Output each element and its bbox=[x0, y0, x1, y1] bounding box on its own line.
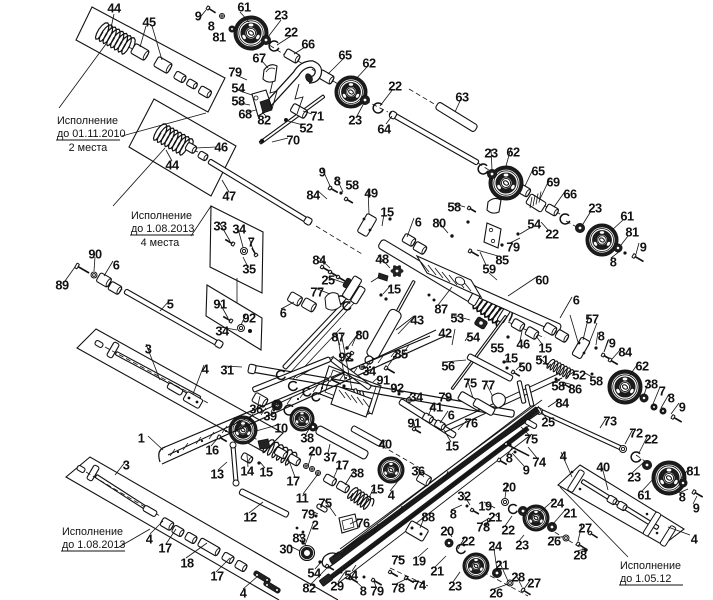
svg-text:81: 81 bbox=[625, 225, 639, 240]
svg-text:36: 36 bbox=[249, 402, 263, 417]
svg-text:9: 9 bbox=[640, 240, 647, 255]
svg-text:15: 15 bbox=[259, 465, 273, 480]
svg-text:23: 23 bbox=[448, 579, 462, 594]
svg-text:9: 9 bbox=[319, 165, 326, 180]
svg-text:69: 69 bbox=[546, 175, 560, 190]
svg-text:26: 26 bbox=[547, 534, 561, 549]
svg-text:90: 90 bbox=[88, 247, 102, 262]
svg-text:62: 62 bbox=[635, 359, 649, 374]
svg-text:51: 51 bbox=[535, 353, 549, 368]
svg-text:9: 9 bbox=[609, 336, 616, 351]
svg-text:17: 17 bbox=[286, 474, 300, 489]
svg-text:13: 13 bbox=[210, 467, 224, 482]
svg-text:21: 21 bbox=[488, 510, 502, 525]
svg-text:75: 75 bbox=[463, 376, 477, 391]
svg-text:54: 54 bbox=[527, 217, 542, 232]
svg-text:65: 65 bbox=[531, 164, 545, 179]
svg-text:36: 36 bbox=[411, 464, 425, 479]
svg-text:58: 58 bbox=[551, 379, 565, 394]
svg-text:38: 38 bbox=[350, 466, 364, 481]
svg-text:89: 89 bbox=[55, 278, 69, 293]
svg-text:8: 8 bbox=[679, 490, 686, 505]
svg-text:57: 57 bbox=[585, 312, 599, 327]
svg-text:74: 74 bbox=[412, 578, 427, 593]
svg-text:40: 40 bbox=[596, 460, 610, 475]
svg-text:53: 53 bbox=[450, 311, 464, 326]
svg-text:27: 27 bbox=[527, 576, 541, 591]
svg-text:8: 8 bbox=[334, 174, 341, 189]
svg-text:34: 34 bbox=[215, 324, 230, 339]
svg-text:77: 77 bbox=[481, 378, 495, 393]
svg-text:66: 66 bbox=[563, 187, 577, 202]
svg-text:до 1.05.12: до 1.05.12 bbox=[620, 573, 671, 585]
svg-text:80: 80 bbox=[432, 216, 446, 231]
svg-text:46: 46 bbox=[516, 337, 530, 352]
svg-text:8: 8 bbox=[610, 255, 617, 270]
svg-text:65: 65 bbox=[338, 48, 352, 63]
svg-text:42: 42 bbox=[438, 326, 452, 341]
svg-text:28: 28 bbox=[511, 570, 525, 585]
svg-text:9: 9 bbox=[679, 400, 686, 415]
svg-text:83: 83 bbox=[292, 531, 306, 546]
svg-text:58: 58 bbox=[447, 200, 461, 215]
svg-text:50: 50 bbox=[518, 360, 532, 375]
svg-text:55: 55 bbox=[490, 341, 504, 356]
svg-text:76: 76 bbox=[356, 516, 370, 531]
svg-text:68: 68 bbox=[238, 107, 252, 122]
svg-text:21: 21 bbox=[563, 506, 577, 521]
svg-text:6: 6 bbox=[280, 306, 287, 321]
svg-text:Исполнение: Исполнение bbox=[131, 210, 192, 222]
svg-text:до 1.08.2013: до 1.08.2013 bbox=[131, 223, 194, 235]
svg-text:38: 38 bbox=[644, 377, 658, 392]
svg-text:82: 82 bbox=[302, 581, 316, 596]
svg-text:3: 3 bbox=[145, 342, 152, 357]
svg-text:3: 3 bbox=[123, 458, 130, 473]
svg-text:72: 72 bbox=[629, 426, 643, 441]
svg-text:16: 16 bbox=[205, 443, 219, 458]
svg-text:78: 78 bbox=[476, 520, 490, 535]
svg-text:35: 35 bbox=[242, 262, 256, 277]
svg-text:Исполнение: Исполнение bbox=[62, 526, 123, 538]
svg-text:1: 1 bbox=[138, 431, 145, 446]
svg-text:22: 22 bbox=[501, 523, 515, 538]
svg-text:22: 22 bbox=[545, 227, 559, 242]
svg-text:14: 14 bbox=[240, 464, 255, 479]
svg-text:15: 15 bbox=[504, 351, 518, 366]
svg-text:56: 56 bbox=[441, 359, 455, 374]
svg-text:81: 81 bbox=[686, 464, 700, 479]
svg-text:24: 24 bbox=[488, 539, 503, 554]
svg-text:8: 8 bbox=[360, 584, 367, 599]
svg-text:8: 8 bbox=[668, 391, 675, 406]
svg-text:11: 11 bbox=[296, 491, 309, 506]
svg-text:58: 58 bbox=[589, 374, 603, 389]
svg-text:34: 34 bbox=[362, 364, 377, 379]
svg-text:22: 22 bbox=[284, 25, 298, 40]
svg-text:91: 91 bbox=[407, 416, 421, 431]
svg-text:17: 17 bbox=[210, 569, 224, 584]
svg-text:20: 20 bbox=[440, 524, 454, 539]
svg-text:Исполнение: Исполнение bbox=[57, 115, 118, 127]
svg-text:22: 22 bbox=[644, 432, 658, 447]
svg-text:6: 6 bbox=[415, 215, 422, 230]
svg-text:62: 62 bbox=[506, 145, 520, 160]
svg-text:6: 6 bbox=[573, 293, 580, 308]
svg-text:2 места: 2 места bbox=[69, 142, 108, 154]
svg-text:79: 79 bbox=[370, 584, 384, 599]
svg-text:21: 21 bbox=[430, 564, 444, 579]
svg-text:44: 44 bbox=[165, 158, 180, 173]
svg-text:77: 77 bbox=[310, 285, 324, 300]
svg-text:66: 66 bbox=[301, 37, 315, 52]
svg-text:87: 87 bbox=[434, 302, 448, 317]
svg-text:23: 23 bbox=[484, 146, 498, 161]
svg-text:39: 39 bbox=[263, 409, 277, 424]
svg-text:91: 91 bbox=[376, 373, 390, 388]
svg-text:31: 31 bbox=[220, 363, 234, 378]
svg-text:8: 8 bbox=[450, 507, 457, 522]
svg-text:21: 21 bbox=[495, 558, 509, 573]
svg-text:7: 7 bbox=[659, 384, 666, 399]
svg-text:84: 84 bbox=[312, 253, 327, 268]
svg-text:23: 23 bbox=[588, 201, 602, 216]
svg-text:92: 92 bbox=[390, 381, 404, 396]
svg-text:48: 48 bbox=[375, 252, 389, 267]
svg-text:34: 34 bbox=[232, 222, 247, 237]
svg-text:92: 92 bbox=[242, 311, 256, 326]
svg-text:84: 84 bbox=[618, 345, 633, 360]
svg-text:61: 61 bbox=[637, 488, 651, 503]
svg-text:47: 47 bbox=[222, 189, 236, 204]
svg-text:80: 80 bbox=[355, 328, 369, 343]
svg-text:17: 17 bbox=[335, 458, 349, 473]
svg-text:33: 33 bbox=[213, 219, 227, 234]
svg-text:74: 74 bbox=[532, 455, 547, 470]
svg-text:61: 61 bbox=[237, 0, 251, 15]
svg-text:64: 64 bbox=[377, 122, 392, 137]
svg-text:82: 82 bbox=[257, 113, 271, 128]
svg-text:79: 79 bbox=[506, 240, 520, 255]
svg-text:91: 91 bbox=[213, 297, 227, 312]
svg-text:9: 9 bbox=[523, 463, 530, 478]
svg-text:60: 60 bbox=[535, 273, 549, 288]
svg-text:44: 44 bbox=[107, 1, 122, 16]
svg-text:32: 32 bbox=[457, 489, 471, 504]
svg-text:2: 2 bbox=[312, 518, 319, 533]
svg-text:30: 30 bbox=[279, 542, 293, 557]
svg-text:78: 78 bbox=[391, 581, 405, 596]
svg-text:Исполнение: Исполнение bbox=[620, 560, 681, 572]
svg-text:19: 19 bbox=[412, 554, 426, 569]
svg-text:62: 62 bbox=[362, 56, 376, 71]
svg-text:28: 28 bbox=[573, 548, 587, 563]
svg-text:8: 8 bbox=[506, 451, 513, 466]
svg-text:75: 75 bbox=[318, 496, 332, 511]
svg-text:54: 54 bbox=[344, 568, 359, 583]
svg-text:86: 86 bbox=[568, 382, 582, 397]
svg-text:81: 81 bbox=[212, 30, 226, 45]
svg-text:6: 6 bbox=[448, 408, 455, 423]
svg-text:84: 84 bbox=[555, 396, 570, 411]
svg-text:20: 20 bbox=[502, 480, 516, 495]
svg-text:85: 85 bbox=[495, 253, 509, 268]
svg-text:9: 9 bbox=[693, 501, 700, 516]
svg-text:9: 9 bbox=[195, 9, 202, 24]
svg-text:43: 43 bbox=[410, 313, 424, 328]
svg-text:15: 15 bbox=[380, 205, 394, 220]
svg-text:54: 54 bbox=[466, 330, 481, 345]
svg-text:27: 27 bbox=[578, 521, 592, 536]
svg-text:15: 15 bbox=[370, 482, 384, 497]
svg-text:61: 61 bbox=[620, 209, 634, 224]
svg-text:23: 23 bbox=[274, 8, 288, 23]
svg-text:49: 49 bbox=[364, 186, 378, 201]
svg-text:75: 75 bbox=[391, 553, 405, 568]
svg-text:75: 75 bbox=[524, 432, 538, 447]
svg-text:6: 6 bbox=[113, 258, 120, 273]
svg-text:5: 5 bbox=[167, 297, 174, 312]
svg-text:26: 26 bbox=[489, 586, 503, 600]
svg-text:18: 18 bbox=[180, 556, 194, 571]
svg-text:23: 23 bbox=[348, 113, 362, 128]
svg-text:23: 23 bbox=[515, 538, 529, 553]
svg-text:23: 23 bbox=[627, 470, 641, 485]
svg-text:22: 22 bbox=[461, 534, 475, 549]
svg-text:84: 84 bbox=[306, 188, 321, 203]
svg-text:22: 22 bbox=[388, 79, 402, 94]
svg-text:59: 59 bbox=[482, 262, 496, 277]
svg-text:45: 45 bbox=[142, 15, 156, 30]
svg-text:88: 88 bbox=[421, 510, 435, 525]
svg-text:70: 70 bbox=[286, 133, 300, 148]
svg-text:до 1.08.2013: до 1.08.2013 bbox=[62, 539, 125, 551]
svg-text:29: 29 bbox=[330, 579, 344, 594]
svg-text:40: 40 bbox=[378, 437, 392, 452]
svg-text:52: 52 bbox=[572, 368, 586, 383]
svg-text:87: 87 bbox=[331, 330, 345, 345]
svg-text:85: 85 bbox=[394, 347, 408, 362]
svg-text:25: 25 bbox=[541, 415, 555, 430]
svg-text:20: 20 bbox=[308, 444, 322, 459]
svg-text:92: 92 bbox=[338, 350, 352, 365]
svg-text:12: 12 bbox=[243, 510, 257, 525]
svg-text:63: 63 bbox=[455, 90, 469, 105]
svg-text:15: 15 bbox=[387, 282, 401, 297]
svg-text:34: 34 bbox=[409, 390, 424, 405]
svg-text:52: 52 bbox=[299, 121, 313, 136]
svg-text:8: 8 bbox=[598, 329, 605, 344]
svg-text:79: 79 bbox=[228, 65, 242, 80]
svg-text:41: 41 bbox=[429, 400, 443, 415]
svg-text:до 01.11.2010: до 01.11.2010 bbox=[57, 128, 126, 140]
svg-text:17: 17 bbox=[158, 541, 172, 556]
svg-text:15: 15 bbox=[445, 439, 459, 454]
svg-text:54: 54 bbox=[307, 566, 322, 581]
svg-text:4 места: 4 места bbox=[141, 237, 180, 249]
svg-text:7: 7 bbox=[248, 235, 255, 250]
svg-text:67: 67 bbox=[252, 51, 266, 66]
svg-text:46: 46 bbox=[214, 140, 228, 155]
svg-text:76: 76 bbox=[464, 416, 478, 431]
svg-text:58: 58 bbox=[345, 178, 359, 193]
svg-text:73: 73 bbox=[603, 414, 617, 429]
